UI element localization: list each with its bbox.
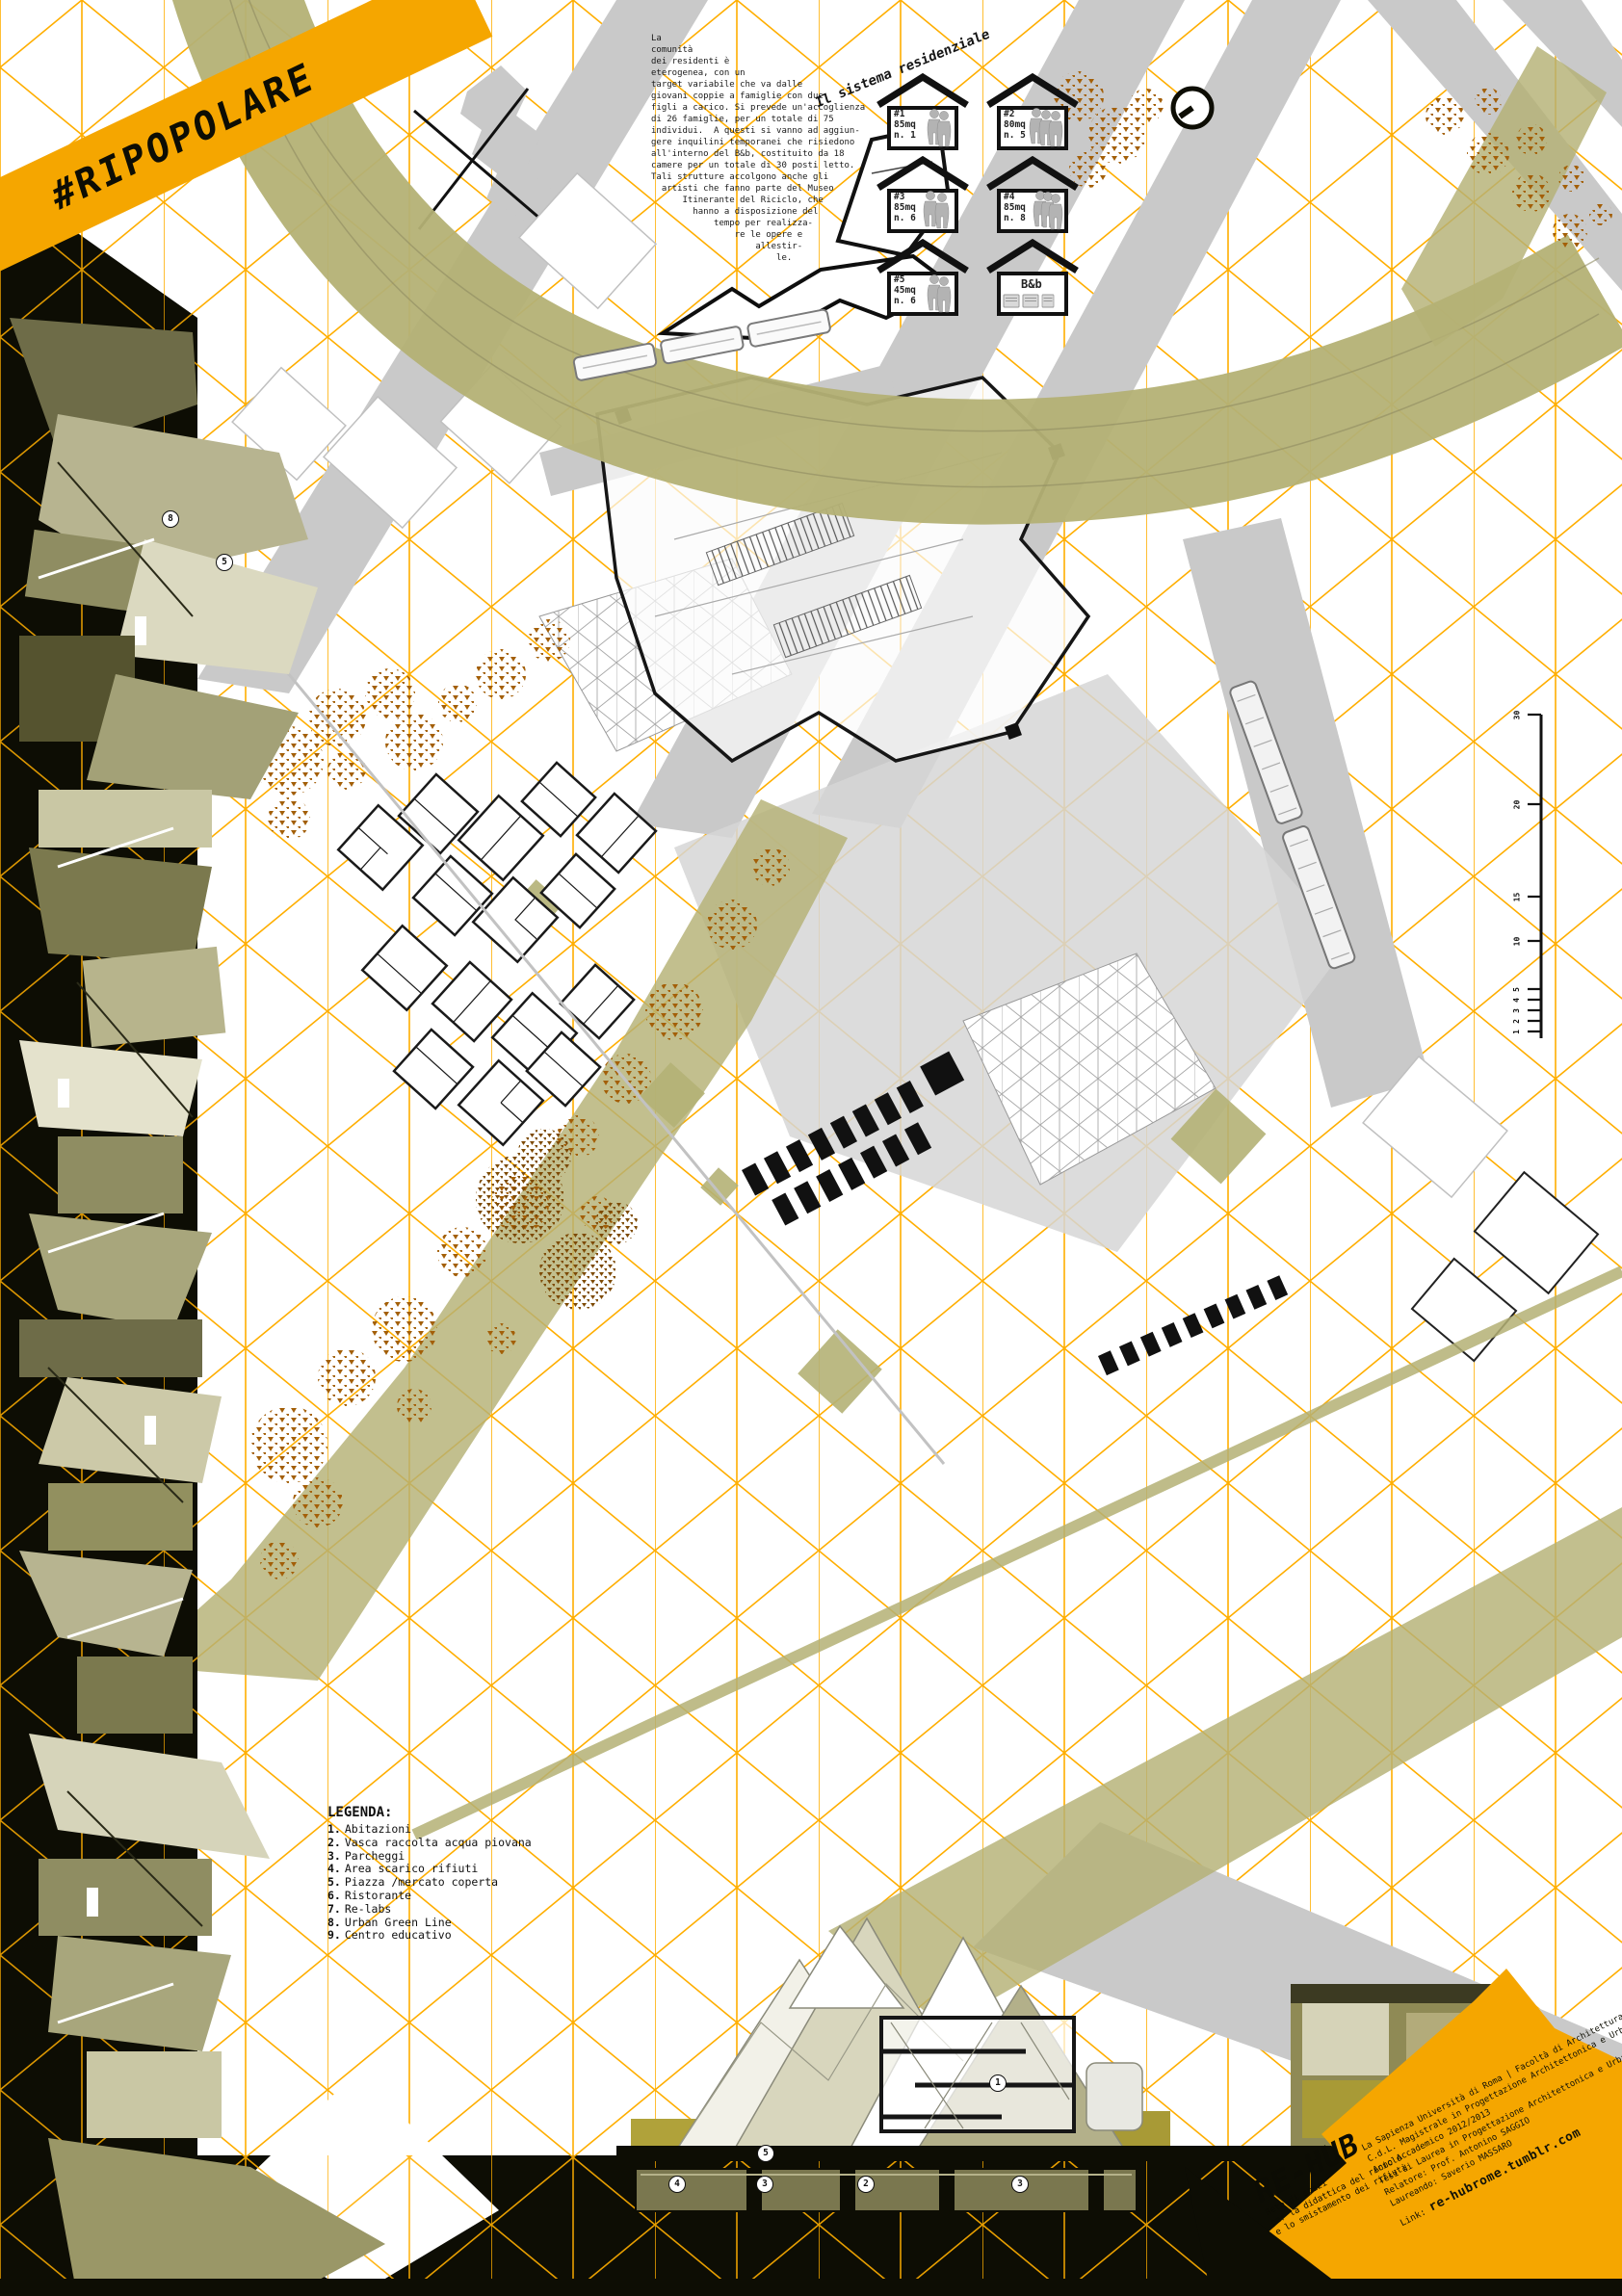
legend-item: 7.Re-labs: [327, 1903, 532, 1917]
legend-item: 5.Piazza /mercato coperta: [327, 1876, 532, 1890]
house-diagram-2: #2 80mq n. 5: [984, 73, 1081, 150]
house-diagram-3: #3 85mq n. 6: [875, 156, 971, 233]
strip-marker: 5: [216, 554, 233, 571]
legend-item: 1.Abitazioni: [327, 1823, 532, 1837]
scale-label: 1: [1512, 1030, 1521, 1034]
scale-label: 30: [1512, 711, 1521, 720]
scale-label: 5: [1512, 987, 1521, 992]
section-marker: 5: [757, 2145, 774, 2162]
house-diagram-bnb: B&b: [984, 239, 1081, 316]
legend-item: 8.Urban Green Line: [327, 1917, 532, 1930]
legend-item: 2.Vasca raccolta acqua piovana: [327, 1837, 532, 1850]
legend-title: LEGENDA:: [327, 1805, 532, 1820]
bottom-strip: [0, 2279, 1622, 2296]
scale-label: 3: [1512, 1008, 1521, 1013]
scale-label: 4: [1512, 998, 1521, 1003]
house-icon: [875, 73, 971, 150]
house-diagram-4: #4 85mq n. 8: [984, 156, 1081, 233]
legend-item: 6.Ristorante: [327, 1890, 532, 1903]
clock-icon: [1169, 85, 1216, 131]
scale-label: 20: [1512, 800, 1521, 810]
base-marker: 3: [1011, 2176, 1029, 2193]
legend: LEGENDA: 1.Abitazioni 2.Vasca raccolta a…: [327, 1805, 532, 1943]
base-marker: 2: [857, 2176, 875, 2193]
legend-item: 9.Centro educativo: [327, 1929, 532, 1943]
section-marker: 1: [989, 2074, 1007, 2092]
base-marker: 4: [668, 2176, 686, 2193]
house-icon: [875, 156, 971, 233]
house-diagram-5: #5 45mq n. 6: [875, 239, 971, 316]
base-marker: 3: [756, 2176, 773, 2193]
scale-label: 2: [1512, 1019, 1521, 1024]
house-icon: [984, 73, 1081, 150]
site-plan-graphic: [0, 0, 1622, 2296]
strip-marker: 8: [162, 510, 179, 528]
intro-text: La comunità dei residenti è eterogenea, …: [651, 33, 849, 264]
house-icon: [875, 239, 971, 316]
house-icon: [984, 156, 1081, 233]
poster-root: #RIPOPOLARE La comunità dei residenti è …: [0, 0, 1622, 2296]
legend-item: 4.Area scarico rifiuti: [327, 1863, 532, 1876]
legend-item: 3.Parcheggi: [327, 1850, 532, 1864]
house-diagram-1: #1 85mq n. 1: [875, 73, 971, 150]
scale-label: 15: [1512, 893, 1521, 902]
scale-label: 10: [1512, 937, 1521, 947]
